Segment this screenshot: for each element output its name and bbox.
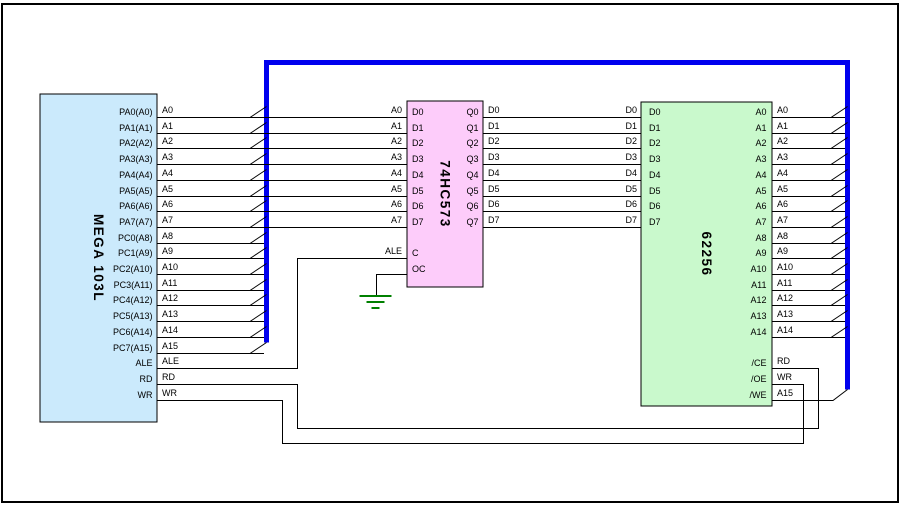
pin-name: A9 <box>755 248 766 258</box>
pin-name: A0 <box>755 107 766 117</box>
net-label: A0 <box>391 105 402 115</box>
net-label: A0 <box>777 105 788 115</box>
pin-name: Q2 <box>466 138 478 148</box>
pin-name: ALE <box>135 358 152 368</box>
pin-name: PC4(A12) <box>113 295 153 305</box>
pin-name: D2 <box>649 138 661 148</box>
pin-name: /CE <box>751 358 766 368</box>
net-label: D1 <box>488 121 500 131</box>
net-label: A6 <box>162 199 173 209</box>
net-label: A11 <box>162 278 177 288</box>
pin-name: PC5(A13) <box>113 311 153 321</box>
pin-name: PA5(A5) <box>119 186 152 196</box>
net-label: A15 <box>777 388 793 398</box>
net-label: A7 <box>391 215 402 225</box>
pin-name: A1 <box>755 123 766 133</box>
net-label: D5 <box>488 184 500 194</box>
pin-name: OC <box>412 264 426 274</box>
net-label: ALE <box>385 246 402 256</box>
pin-name: Q1 <box>466 123 478 133</box>
pin-name: A6 <box>755 201 766 211</box>
pin-name: D0 <box>649 107 661 117</box>
pin-name: A4 <box>755 170 766 180</box>
circuit-schematic: MEGA 103LPA0(A0)PA1(A1)PA2(A2)PA3(A3)PA4… <box>0 0 905 507</box>
pin-name: D4 <box>649 170 661 180</box>
pin-name: Q3 <box>466 154 478 164</box>
net-label: D1 <box>625 121 637 131</box>
pin-name: D7 <box>412 217 424 227</box>
pin-name: PA4(A4) <box>119 170 152 180</box>
net-label: ALE <box>162 356 179 366</box>
mega103l-chip: MEGA 103LPA0(A0)PA1(A1)PA2(A2)PA3(A3)PA4… <box>40 94 157 422</box>
pin-name: A8 <box>755 233 766 243</box>
pin-name: Q0 <box>466 107 478 117</box>
net-label: A10 <box>162 262 178 272</box>
net-label: D4 <box>488 168 500 178</box>
net-label: A11 <box>777 278 792 288</box>
pin-name: D5 <box>412 186 424 196</box>
net-label: D0 <box>488 105 500 115</box>
pin-name: D6 <box>649 201 661 211</box>
74hc573-latch-chip: 74HC573D0D1D2D3D4D5D6D7COCQ0Q1Q2Q3Q4Q5Q6… <box>407 101 483 287</box>
pin-name: A13 <box>750 311 766 321</box>
pin-name: D4 <box>412 170 424 180</box>
pin-name: /WE <box>750 390 767 400</box>
pin-name: RD <box>140 374 153 384</box>
net-label: D3 <box>488 152 500 162</box>
pin-name: PA6(A6) <box>119 201 152 211</box>
net-label: A2 <box>391 136 402 146</box>
net-label: A1 <box>391 121 402 131</box>
pin-name: A10 <box>750 264 766 274</box>
net-label: D7 <box>625 215 637 225</box>
pin-name: D6 <box>412 201 424 211</box>
pin-name: PA3(A3) <box>119 154 152 164</box>
net-label: D6 <box>625 199 637 209</box>
net-label: A3 <box>777 152 788 162</box>
62256-sram-chip: 62256D0D1D2D3D4D5D6D7A0A1A2A3A4A5A6A7A8A… <box>641 102 772 406</box>
net-label: A12 <box>162 293 178 303</box>
net-label: A4 <box>162 168 173 178</box>
net-label: A14 <box>162 325 178 335</box>
net-label: RD <box>777 356 790 366</box>
net-label: A4 <box>777 168 788 178</box>
net-label: A6 <box>391 199 402 209</box>
net-label: A14 <box>777 325 793 335</box>
net-label: A5 <box>777 184 788 194</box>
pin-name: C <box>412 248 419 258</box>
pin-name: Q4 <box>466 170 478 180</box>
net-label: D3 <box>625 152 637 162</box>
net-label: A8 <box>777 231 788 241</box>
pin-name: A3 <box>755 154 766 164</box>
62256-sram-chip-title: 62256 <box>699 231 714 276</box>
net-label: A15 <box>162 341 178 351</box>
pin-name: PA1(A1) <box>119 123 152 133</box>
mega103l-chip-title: MEGA 103L <box>91 214 106 302</box>
net-label: A13 <box>162 309 178 319</box>
net-label: A7 <box>777 215 788 225</box>
pin-name: D3 <box>412 154 424 164</box>
pin-name: PC6(A14) <box>113 327 153 337</box>
net-label: A1 <box>777 121 788 131</box>
schematic-canvas: MEGA 103LPA0(A0)PA1(A1)PA2(A2)PA3(A3)PA4… <box>0 0 905 507</box>
net-label: A9 <box>162 246 173 256</box>
pin-name: PA2(A2) <box>119 138 152 148</box>
pin-name: PC0(A8) <box>118 233 153 243</box>
net-label: D5 <box>625 184 637 194</box>
pin-name: A11 <box>751 280 766 290</box>
pin-name: WR <box>138 390 153 400</box>
pin-name: D2 <box>412 138 424 148</box>
pin-name: Q6 <box>466 201 478 211</box>
net-label: A6 <box>777 199 788 209</box>
net-label: D6 <box>488 199 500 209</box>
pin-name: D1 <box>649 123 661 133</box>
pin-name: PC1(A9) <box>118 248 153 258</box>
pin-name: A5 <box>755 186 766 196</box>
pin-name: D7 <box>649 217 661 227</box>
net-label: RD <box>162 372 175 382</box>
pin-name: /OE <box>751 374 767 384</box>
pin-name: Q5 <box>466 186 478 196</box>
pin-name: PA0(A0) <box>119 107 152 117</box>
net-label: A0 <box>162 105 173 115</box>
pin-name: PA7(A7) <box>119 217 152 227</box>
net-label: A5 <box>391 184 402 194</box>
net-label: A12 <box>777 293 793 303</box>
net-label: A3 <box>162 152 173 162</box>
net-label: D0 <box>625 105 637 115</box>
net-label: A4 <box>391 168 402 178</box>
net-label: D2 <box>488 136 500 146</box>
net-label: A2 <box>777 136 788 146</box>
net-label: WR <box>777 372 792 382</box>
net-label: D2 <box>625 136 637 146</box>
net-label: A5 <box>162 184 173 194</box>
pin-name: A12 <box>750 295 766 305</box>
net-label: A8 <box>162 231 173 241</box>
pin-name: A2 <box>755 138 766 148</box>
net-label: WR <box>162 388 177 398</box>
net-label: A9 <box>777 246 788 256</box>
pin-name: D5 <box>649 186 661 196</box>
net-label: D4 <box>625 168 637 178</box>
net-label: A1 <box>162 121 173 131</box>
pin-name: D1 <box>412 123 424 133</box>
net-label: D7 <box>488 215 500 225</box>
net-label: A10 <box>777 262 793 272</box>
pin-name: D3 <box>649 154 661 164</box>
net-label: A7 <box>162 215 173 225</box>
net-label: A13 <box>777 309 793 319</box>
pin-name: D0 <box>412 107 424 117</box>
pin-name: PC7(A15) <box>113 343 153 353</box>
pin-name: A14 <box>750 327 766 337</box>
pin-name: Q7 <box>466 217 478 227</box>
74hc573-latch-chip-title: 74HC573 <box>437 160 452 228</box>
pin-name: PC2(A10) <box>113 264 153 274</box>
pin-name: PC3(A11) <box>114 280 153 290</box>
pin-name: A7 <box>755 217 766 227</box>
net-label: A2 <box>162 136 173 146</box>
net-label: A3 <box>391 152 402 162</box>
